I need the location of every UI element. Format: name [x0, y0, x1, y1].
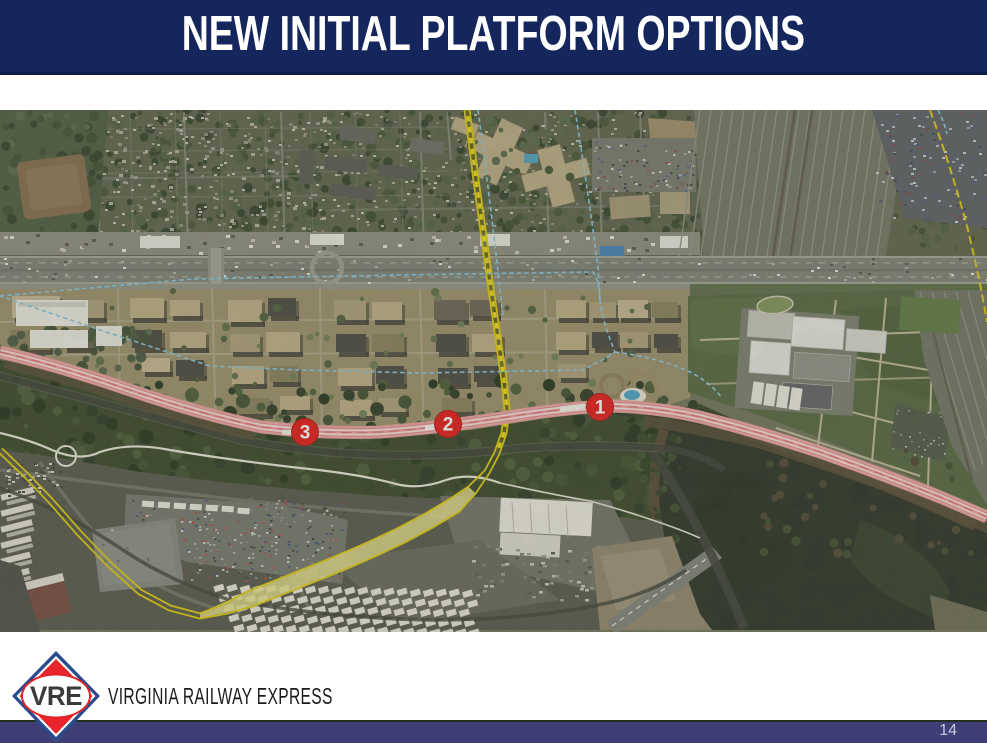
svg-text:VRE: VRE	[30, 681, 82, 711]
